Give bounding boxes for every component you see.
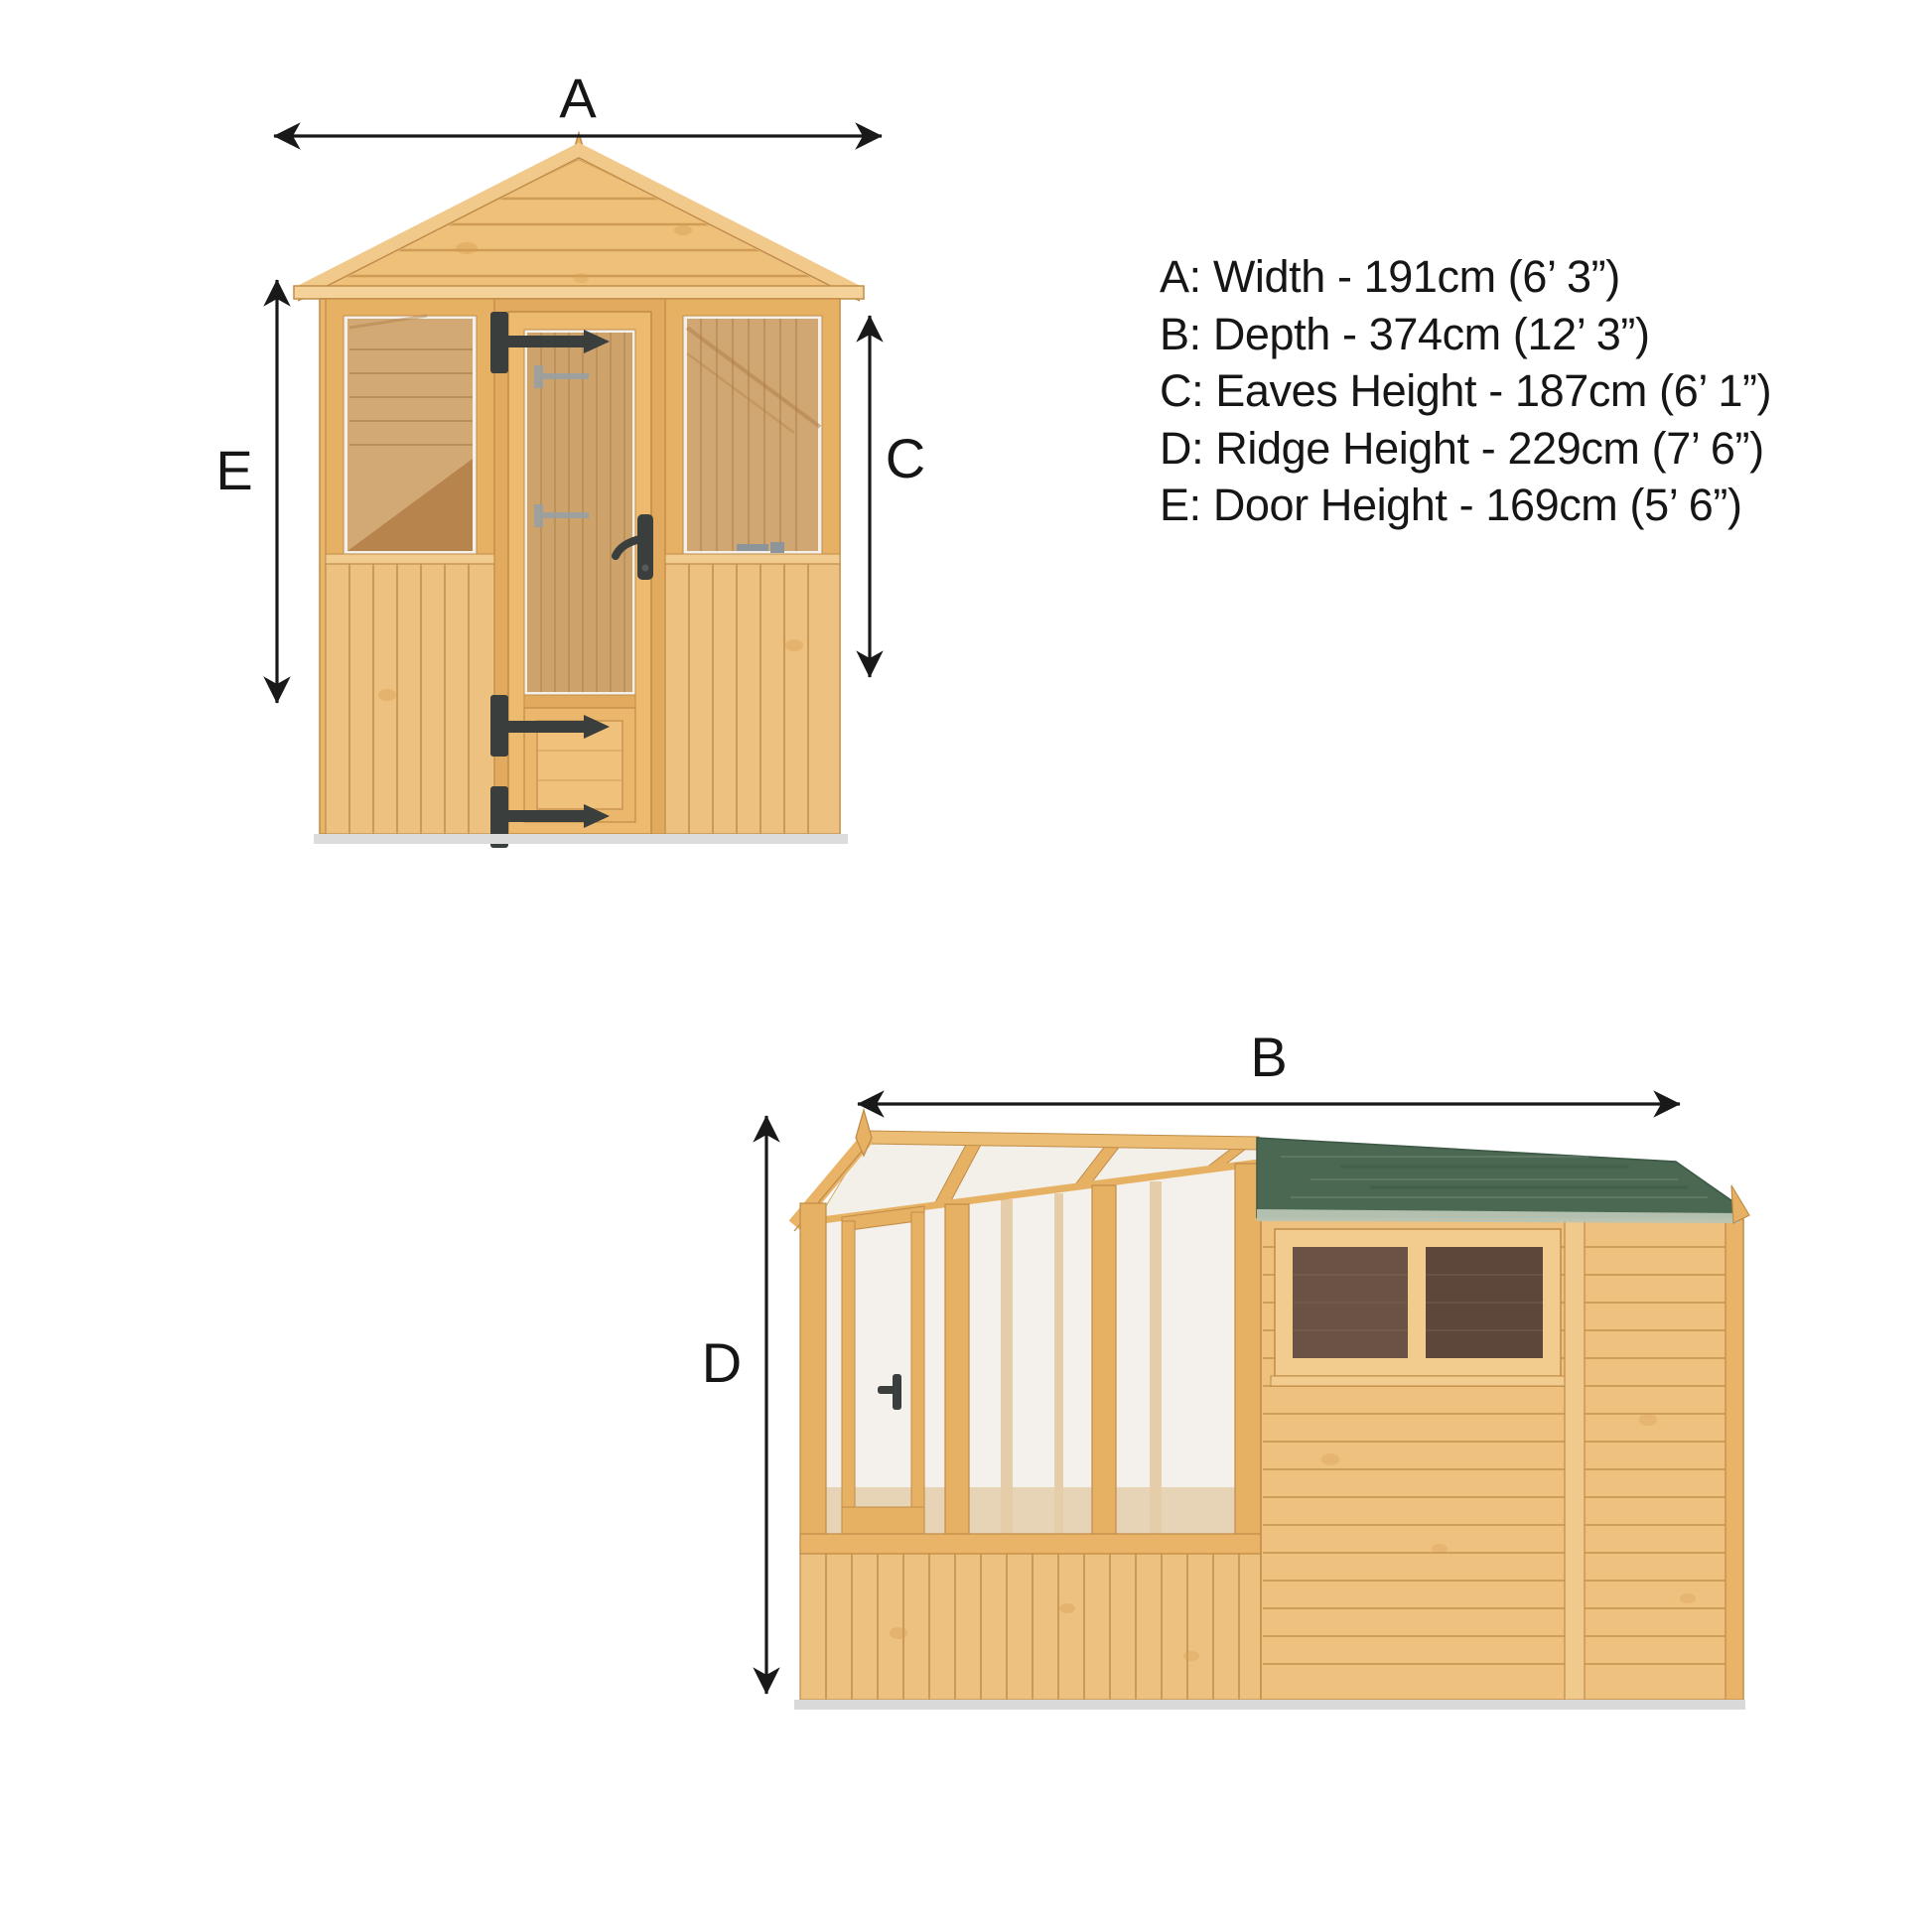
side-elevation-view: B D: [702, 1026, 1749, 1710]
front-elevation-view: A E C: [215, 67, 925, 848]
dimension-key: A: Width - 191cm (6’ 3”) B: Depth - 374c…: [1160, 248, 1771, 534]
greenhouse-corner-post: [800, 1203, 826, 1554]
shed-window: [1271, 1229, 1565, 1386]
greenhouse-sill-rail: [800, 1534, 1261, 1554]
shed-section: [1257, 1138, 1749, 1700]
dimension-diagram-page: A E C: [0, 0, 1932, 1932]
door-interior-view: [527, 333, 632, 692]
greenhouse-side-wall: [800, 1164, 1261, 1554]
front-door: [490, 299, 665, 848]
legend-line-width: A: Width - 191cm (6’ 3”): [1160, 248, 1771, 306]
legend-line-ridge-height: D: Ridge Height - 229cm (7’ 6”): [1160, 420, 1771, 478]
right-base-cladding: [665, 564, 840, 834]
right-sill: [665, 554, 840, 564]
dimension-label-c: C: [886, 427, 925, 489]
legend-line-eaves-height: C: Eaves Height - 187cm (6’ 1”): [1160, 362, 1771, 420]
interior-latch-hardware: [770, 542, 784, 553]
legend-line-depth: B: Depth - 374cm (12’ 3”): [1160, 306, 1771, 363]
door-panel-inset: [537, 721, 622, 809]
shed-window-sill: [1271, 1376, 1565, 1386]
left-panel-interior: [347, 316, 473, 551]
right-panel-interior: [687, 319, 820, 553]
dimension-label-b: B: [1250, 1026, 1287, 1088]
legend-line-door-height: E: Door Height - 169cm (5’ 6”): [1160, 477, 1771, 534]
front-right-glazed-panel: [665, 299, 840, 834]
front-left-glazed-panel: [326, 299, 494, 834]
greenhouse-base-cladding: [800, 1554, 1261, 1700]
shed-corner-trim: [1725, 1219, 1743, 1700]
dimension-label-d: D: [702, 1331, 742, 1394]
greenhouse-shed-junction-post: [1235, 1164, 1261, 1554]
shed-roof-green-felt: [1257, 1138, 1739, 1217]
left-sill: [326, 554, 494, 564]
shed-vertical-trim: [1565, 1219, 1585, 1700]
front-base-shadow: [314, 834, 848, 844]
shed-felt-roof: [1257, 1138, 1749, 1223]
shed-roof-finial-tip: [1731, 1185, 1749, 1223]
door-mid-rail: [524, 695, 635, 708]
eaves-fascia: [294, 286, 864, 299]
interior-bolt-hardware: [737, 544, 768, 551]
dimension-label-a: A: [559, 67, 597, 129]
front-apex-roof: [294, 133, 864, 301]
side-base-shadow: [794, 1700, 1745, 1710]
dimension-label-e: E: [215, 439, 252, 501]
